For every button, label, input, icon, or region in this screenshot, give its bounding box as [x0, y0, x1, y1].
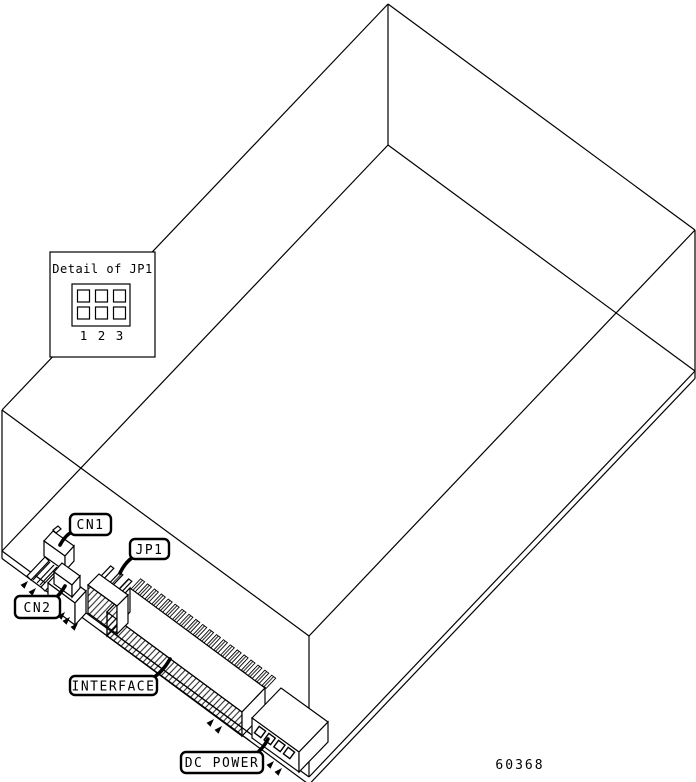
- jumper-pad: [96, 290, 108, 302]
- jp1-jumper-block: [88, 566, 132, 634]
- jumper-pad: [78, 290, 90, 302]
- jumper-pin-number: 2: [98, 328, 106, 343]
- jumper-pad: [114, 290, 126, 302]
- jp1-callout: JP1: [120, 539, 169, 573]
- isometric-device-diagram: CN1 JP1 CN2 INTERFACE DC POWER Detail of…: [0, 0, 696, 782]
- pin1-arrow: [29, 588, 37, 596]
- detail-inset-title: Detail of JP1: [52, 262, 152, 276]
- jumper-pad: [78, 307, 90, 319]
- jumper-pin-number: 3: [116, 328, 124, 343]
- cn2-label: CN2: [24, 601, 52, 616]
- jumper-pin-number: 1: [80, 328, 88, 343]
- chassis-wireframe: [2, 4, 695, 782]
- cn1-leg: [27, 557, 49, 580]
- interface-label: INTERFACE: [72, 680, 156, 695]
- pin1-arrow: [215, 726, 223, 734]
- pin1-arrow: [275, 768, 283, 776]
- diagram-canvas: CN1 JP1 CN2 INTERFACE DC POWER Detail of…: [0, 0, 696, 782]
- dc-power-label: DC POWER: [185, 756, 260, 771]
- pin1-arrow: [21, 581, 29, 589]
- figure-number: 60368: [495, 758, 544, 773]
- jp1-detail-inset: Detail of JP1 1 2 3: [50, 252, 155, 357]
- cn1-callout: CN1: [60, 514, 111, 545]
- cn1-label: CN1: [77, 518, 105, 533]
- pin1-arrow: [267, 761, 275, 769]
- jumper-pad: [114, 307, 126, 319]
- jumper-pad: [96, 307, 108, 319]
- pin1-arrow: [207, 719, 215, 727]
- jp1-label: JP1: [136, 543, 164, 558]
